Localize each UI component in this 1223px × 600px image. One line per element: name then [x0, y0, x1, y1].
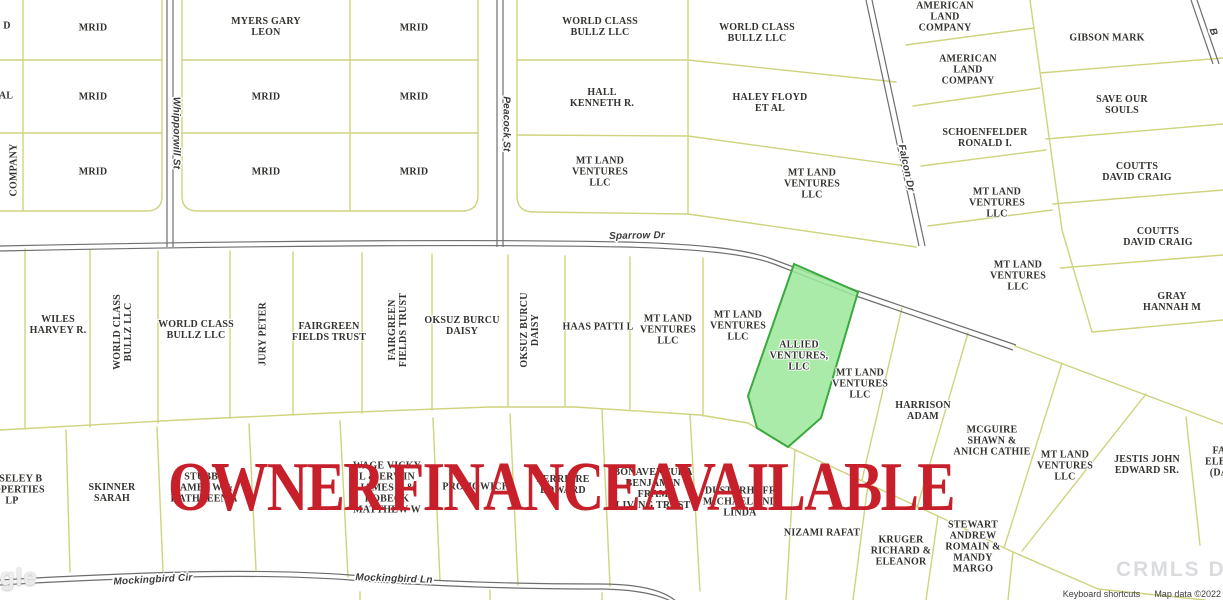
- parcel-label: AL: [0, 91, 13, 102]
- parcel-label: D: [3, 21, 10, 32]
- parcel-label: HALL KENNETH R.: [570, 87, 634, 109]
- parcel-label: MOSELEY B PROPERTIES LP: [0, 474, 45, 507]
- parcel-label: MYERS GARY LEON: [231, 16, 301, 38]
- parcel-label: COMPANY: [9, 144, 20, 197]
- parcel-label: MT LAND VENTURES LLC: [832, 368, 888, 401]
- parcel-label: MT LAND VENTURES LLC: [572, 156, 628, 189]
- keyboard-shortcuts-link[interactable]: Keyboard shortcuts: [1063, 589, 1141, 599]
- parcel-label: WILES HARVEY R.: [30, 314, 87, 336]
- parcel-label: WORLD CLASS BULLZ LLC: [112, 294, 134, 370]
- parcel-label: OKSUZ BURCU DAISY: [519, 292, 541, 367]
- street-label: B: [1207, 27, 1220, 38]
- street-label: Peacock St: [501, 96, 512, 151]
- parcel-label: JURY PETER: [258, 302, 269, 366]
- parcel-label: SCHOENFELDER RONALD I.: [942, 127, 1027, 149]
- parcel-label: MT LAND VENTURES LLC: [640, 314, 696, 347]
- parcel-label: MT LAND VENTURES LLC: [784, 168, 840, 201]
- parcel-label: MRID: [400, 23, 429, 34]
- parcel-label: AMERICAN LAND COMPANY: [916, 1, 974, 34]
- parcel-label: KRUGER RICHARD & ELEANOR: [871, 535, 931, 568]
- parcel-label: MRID: [79, 167, 108, 178]
- parcel-label: SAVE OUR SOULS: [1096, 94, 1148, 116]
- parcel-label: FA ELEA (DA: [1205, 446, 1223, 479]
- parcel-label: MCGUIRE SHAWN & ANICH CATHIE: [954, 425, 1031, 458]
- street-label: Falcon Dr: [896, 143, 917, 192]
- parcel-label: MRID: [252, 92, 281, 103]
- parcel-label: WORLD CLASS BULLZ LLC: [562, 16, 638, 38]
- parcel-label: SKINNER SARAH: [89, 482, 136, 504]
- parcel-label: ALLIED VENTURES, LLC: [770, 340, 829, 373]
- parcel-label: MRID: [400, 92, 429, 103]
- owner-finance-overlay-text: OWNER FINANCE AVAILABLE: [168, 448, 954, 528]
- parcel-label: JESTIS JOHN EDWARD SR.: [1114, 454, 1180, 476]
- parcel-label: MRID: [252, 167, 281, 178]
- map-data-attribution: Map data ©2022: [1154, 589, 1221, 599]
- watermark-text: CRMLS DE: [1116, 558, 1223, 582]
- parcel-label: GRAY HANNAH M: [1143, 291, 1201, 313]
- street-label: Mockingbird Ln: [355, 572, 433, 586]
- street-label: Mockingbird Cir: [113, 572, 193, 587]
- google-logo-partial[interactable]: gle: [0, 564, 38, 592]
- parcel-label: NIZAMI RAFAT: [784, 528, 860, 539]
- parcel-label: HALEY FLOYD ET AL: [733, 92, 808, 114]
- parcel-label: AMERICAN LAND COMPANY: [939, 54, 997, 87]
- map-attribution: Keyboard shortcuts Map data ©2022: [1063, 589, 1221, 599]
- parcel-label: WORLD CLASS BULLZ LLC: [158, 319, 234, 341]
- parcel-label: MT LAND VENTURES LLC: [990, 260, 1046, 293]
- parcel-label: MRID: [79, 92, 108, 103]
- street-label: Whipporwill St: [171, 97, 182, 169]
- parcel-label: MT LAND VENTURES LLC: [1037, 450, 1093, 483]
- parcel-label: HAAS PATTI L: [563, 322, 634, 333]
- parcel-label: GIBSON MARK: [1069, 33, 1144, 44]
- street-label: Sparrow Dr: [609, 230, 665, 242]
- parcel-label: FAIRGREEN FIELDS TRUST: [387, 293, 409, 367]
- parcel-label: COUTTS DAVID CRAIG: [1102, 161, 1172, 183]
- parcel-label: MT LAND VENTURES LLC: [969, 187, 1025, 220]
- parcel-label: FAIRGREEN FIELDS TRUST: [292, 321, 366, 343]
- parcel-label: OKSUZ BURCU DAISY: [424, 315, 499, 337]
- parcel-label: WORLD CLASS BULLZ LLC: [719, 22, 795, 44]
- parcel-label: MRID: [400, 167, 429, 178]
- parcel-label: MRID: [79, 23, 108, 34]
- parcel-label: HARRISON ADAM: [895, 400, 951, 422]
- parcel-label: MT LAND VENTURES LLC: [710, 310, 766, 343]
- parcel-label: COUTTS DAVID CRAIG: [1123, 226, 1193, 248]
